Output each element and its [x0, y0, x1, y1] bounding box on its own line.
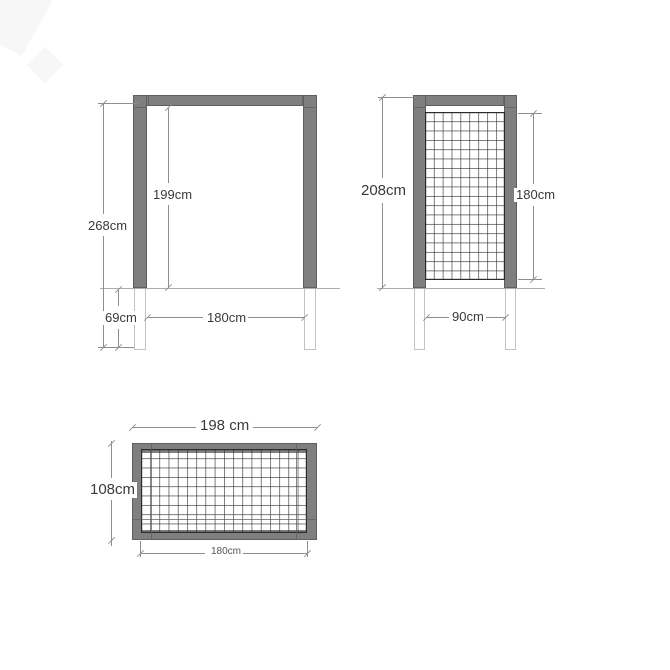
dim-label-front-inner-height: 199cm [151, 188, 194, 202]
front-corner-joint [148, 95, 149, 106]
dim-label-front-underground: 69cm [103, 311, 139, 325]
side-trellis-grid [425, 112, 505, 280]
dim-label-front-total-height: 268cm [86, 219, 129, 233]
dim-label-top-inner-width: 180cm [209, 547, 243, 558]
pergola-dimension-drawing: 268cm 199cm 69cm 180cm [0, 0, 670, 670]
dim-line-268 [103, 104, 104, 214]
dim-label-side-total-height: 208cm [359, 183, 408, 199]
side-ground-line [377, 288, 545, 289]
watermark-shape [27, 47, 64, 84]
dim-label-side-trellis-height: 180cm [514, 188, 557, 202]
dim-line-108 [111, 441, 112, 478]
top-view-post-joint [151, 443, 152, 540]
dim-line-180-top [140, 553, 205, 554]
dim-ext-line [140, 541, 141, 557]
side-corner-joint [413, 107, 426, 108]
side-right-post-underground [505, 288, 516, 350]
side-corner-joint [504, 107, 517, 108]
dim-line-268 [103, 236, 104, 347]
dim-label-side-inner-width: 90cm [450, 310, 486, 324]
dim-tick [314, 424, 321, 431]
side-corner-joint [425, 95, 426, 106]
side-top-beam [413, 95, 517, 106]
top-trellis-grid [141, 449, 307, 533]
dim-line-208 [382, 203, 383, 288]
dim-label-top-total-width: 198 cm [198, 418, 251, 434]
dim-line-198 [253, 427, 317, 428]
dim-ext-line [518, 113, 542, 114]
front-corner-joint [302, 95, 303, 106]
dim-line-180 [243, 317, 304, 318]
dim-line-198 [132, 427, 196, 428]
dim-line-208 [382, 98, 383, 178]
front-corner-joint [303, 107, 317, 108]
side-corner-joint [503, 95, 504, 106]
dim-line-180 [147, 317, 203, 318]
dim-line-90 [426, 317, 449, 318]
dim-ext-line [518, 279, 542, 280]
dim-label-top-total-depth: 108cm [88, 482, 137, 498]
dim-line-199 [168, 205, 169, 288]
front-right-post-underground [304, 288, 316, 350]
front-top-beam [133, 95, 317, 106]
front-right-post [303, 95, 317, 288]
dim-label-front-inner-width: 180cm [205, 311, 248, 325]
dim-line-180-top [243, 553, 307, 554]
top-view-post-joint [296, 443, 297, 540]
front-left-post [133, 95, 147, 288]
dim-line-180-side [533, 114, 534, 184]
dim-line-199 [168, 108, 169, 183]
dim-line-180-side [533, 206, 534, 279]
front-corner-joint [133, 107, 147, 108]
front-ground-line [100, 288, 340, 289]
top-view-rail-joint [132, 519, 317, 520]
dim-ext-line [307, 541, 308, 557]
dim-line-69 [118, 289, 119, 306]
